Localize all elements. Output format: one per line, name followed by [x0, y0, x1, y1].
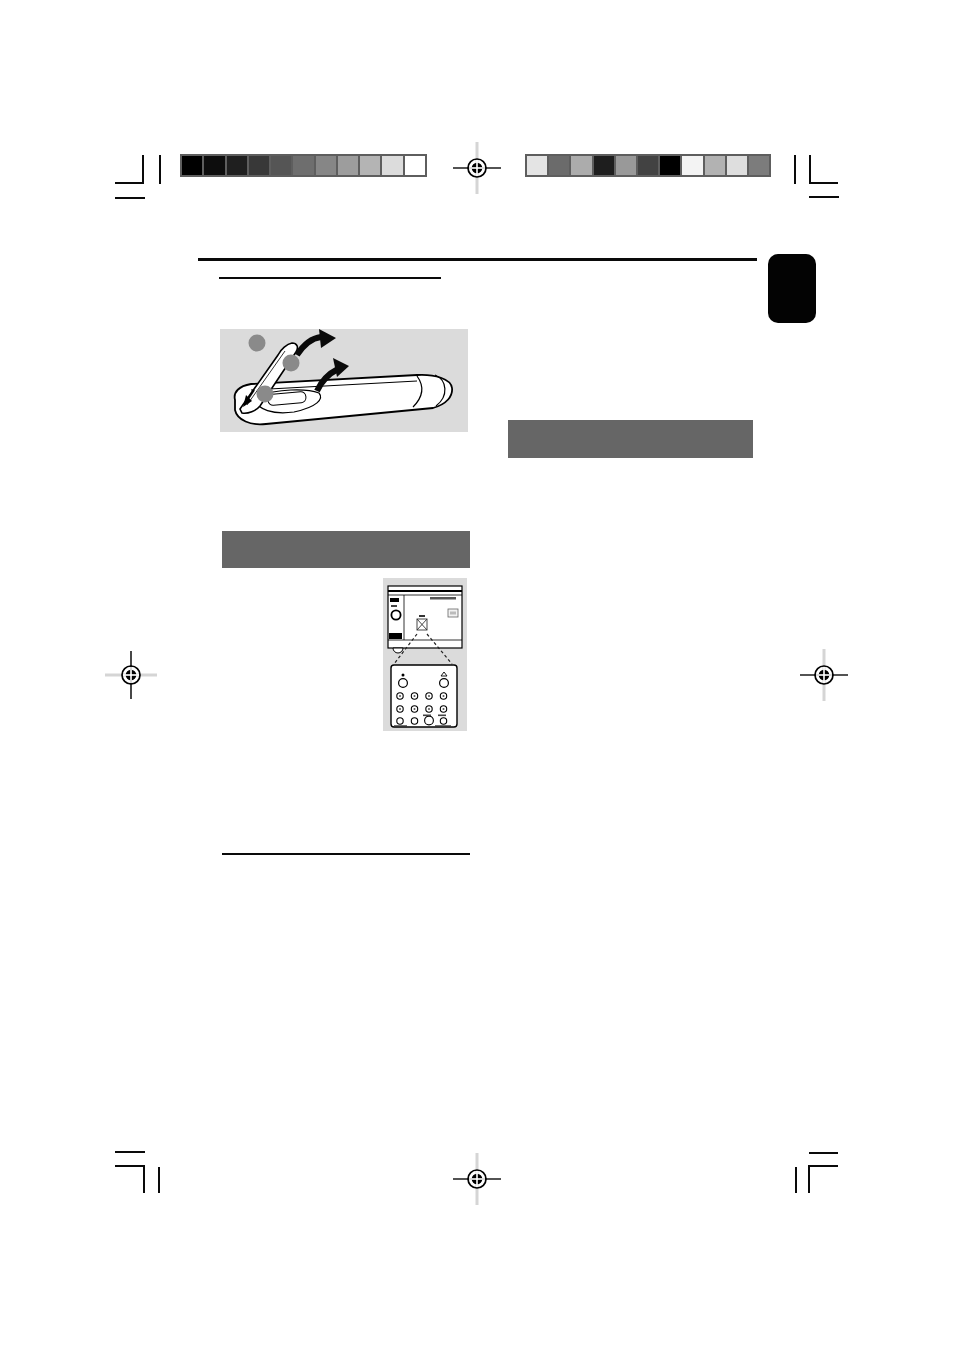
color-swatch	[725, 154, 749, 177]
crop-mark	[809, 182, 838, 184]
crop-mark	[158, 1167, 160, 1193]
ir-sensor-drawing	[383, 578, 467, 731]
section-divider-top	[219, 277, 441, 279]
mini-system-front-panel	[388, 586, 462, 653]
manual-prepress-page	[0, 0, 954, 1350]
crop-mark	[143, 1165, 145, 1193]
power-icon	[402, 674, 405, 677]
crop-mark	[809, 196, 839, 198]
color-swatch	[269, 154, 293, 177]
battery-installation-figure	[220, 329, 468, 432]
registration-mark-top-center	[449, 140, 505, 196]
color-swatch	[525, 154, 549, 177]
direction-arrow-icon	[297, 329, 336, 355]
ir-sensor-figure	[383, 578, 467, 731]
crop-mark	[795, 1167, 797, 1193]
color-swatch	[336, 154, 360, 177]
color-swatch	[202, 154, 226, 177]
section-divider-bottom	[222, 853, 470, 855]
callout-dot	[257, 386, 274, 403]
color-swatch	[247, 154, 271, 177]
unit-foot	[393, 648, 403, 653]
volume-knob	[391, 610, 400, 619]
section-header-bar-left	[222, 531, 470, 568]
color-swatch	[180, 154, 204, 177]
color-swatch	[314, 154, 338, 177]
crop-mark	[159, 155, 161, 184]
color-swatch	[403, 154, 427, 177]
crop-mark	[115, 1165, 145, 1167]
crop-mark	[794, 155, 796, 184]
battery-installation-drawing	[220, 329, 468, 432]
color-swatch	[614, 154, 638, 177]
eject-button	[440, 679, 449, 688]
color-swatch	[636, 154, 660, 177]
color-swatch	[747, 154, 771, 177]
color-swatch	[358, 154, 382, 177]
page-edge-tab	[768, 254, 816, 323]
color-swatch	[225, 154, 249, 177]
color-swatch	[703, 154, 727, 177]
remote-control	[391, 665, 457, 727]
section-header-bar-right	[508, 420, 753, 458]
crop-mark	[808, 1165, 838, 1167]
crop-mark	[115, 182, 144, 184]
header-rule	[198, 258, 757, 261]
crop-mark	[115, 197, 145, 199]
crop-mark	[809, 155, 811, 184]
crop-mark	[808, 1165, 810, 1193]
registration-mark-left-middle	[103, 647, 159, 703]
color-swatch	[592, 154, 616, 177]
calibration-bar-left	[180, 154, 427, 177]
callout-dot	[283, 355, 300, 372]
color-swatch	[291, 154, 315, 177]
color-swatch	[380, 154, 404, 177]
crop-mark	[115, 1151, 145, 1153]
registration-mark-right-middle	[796, 647, 852, 703]
crop-mark	[809, 1152, 838, 1154]
callout-dot	[249, 335, 266, 352]
color-swatch	[680, 154, 704, 177]
calibration-bar-right	[525, 154, 771, 177]
crop-mark	[142, 155, 144, 184]
color-swatch	[658, 154, 682, 177]
color-swatch	[547, 154, 571, 177]
registration-mark-bottom-center	[449, 1151, 505, 1207]
color-swatch	[569, 154, 593, 177]
power-button	[399, 679, 408, 688]
